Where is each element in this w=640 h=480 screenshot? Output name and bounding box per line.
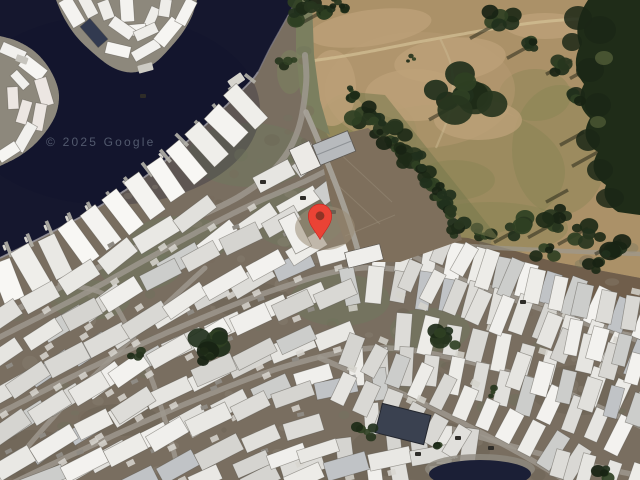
svg-text:© 2025 Google: © 2025 Google: [46, 135, 156, 149]
